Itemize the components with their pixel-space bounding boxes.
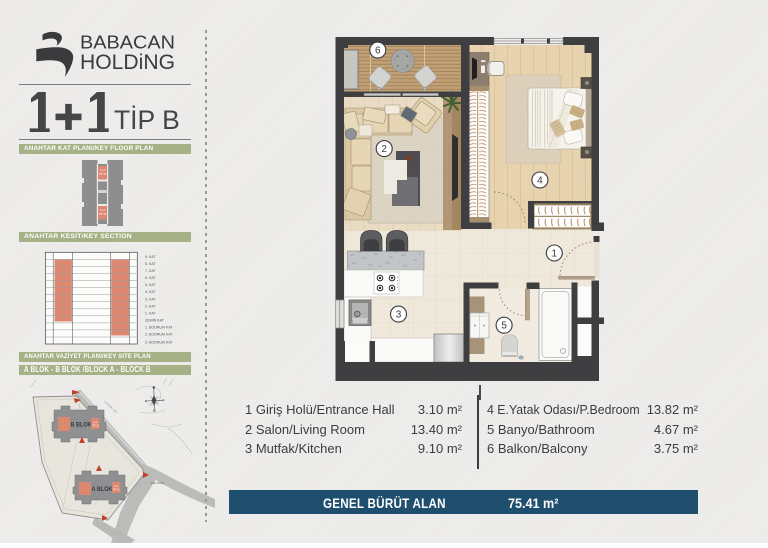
- svg-text:2. BODRUM KAT: 2. BODRUM KAT: [145, 333, 173, 337]
- svg-text:5. KAT: 5. KAT: [145, 283, 157, 287]
- svg-text:2: 2: [381, 144, 387, 155]
- svg-text:A BLOK: A BLOK: [92, 486, 113, 493]
- svg-text:8. KAT: 8. KAT: [145, 262, 157, 266]
- svg-text:3: 3: [396, 310, 402, 321]
- svg-text:BABACAN: BABACAN: [80, 32, 175, 53]
- svg-text:1+1: 1+1: [93, 420, 98, 424]
- svg-text:6: 6: [375, 46, 381, 57]
- svg-text:1. BODRUM KAT: 1. BODRUM KAT: [145, 326, 173, 330]
- svg-text:1. KAT: 1. KAT: [145, 311, 157, 315]
- svg-text:3. KAT: 3. KAT: [145, 297, 157, 301]
- svg-text:ZEMİN KAT: ZEMİN KAT: [145, 317, 165, 322]
- svg-text:ATATÜRK CAD.: ATATÜRK CAD.: [103, 401, 118, 415]
- svg-text:3. BODRUM KAT: 3. BODRUM KAT: [145, 341, 173, 345]
- svg-text:HOLDiNG: HOLDiNG: [80, 51, 175, 74]
- svg-text:2. KAT: 2. KAT: [145, 304, 157, 308]
- svg-text:4: 4: [537, 176, 543, 187]
- svg-text:7. KAT: 7. KAT: [145, 269, 157, 273]
- svg-text:4. KAT: 4. KAT: [145, 290, 157, 294]
- svg-text:TİP B: TİP B: [99, 211, 106, 216]
- svg-text:1+1: 1+1: [114, 484, 119, 488]
- svg-text:6. KAT: 6. KAT: [145, 276, 157, 280]
- svg-text:1: 1: [552, 249, 558, 260]
- svg-text:B BLOK: B BLOK: [71, 422, 92, 429]
- svg-text:9. KAT: 9. KAT: [145, 255, 157, 259]
- svg-text:5: 5: [501, 321, 507, 332]
- svg-text:TİP B: TİP B: [99, 171, 106, 176]
